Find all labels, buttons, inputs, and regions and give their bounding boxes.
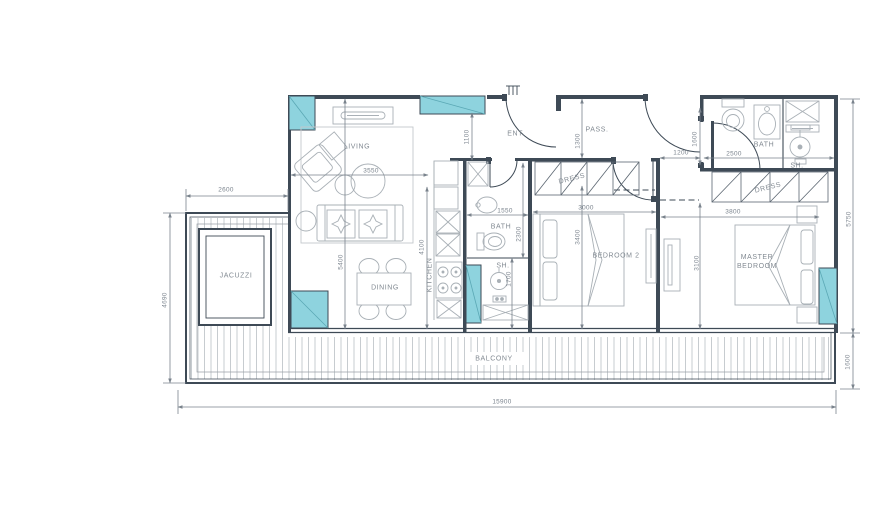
- dim-1600-door: 1600: [692, 131, 699, 147]
- dim-2500: 2500: [726, 151, 742, 158]
- column: [819, 268, 837, 324]
- room-label-jacuzzi: JACUZZI: [220, 273, 253, 280]
- dim-15900: 15900: [492, 399, 511, 406]
- dim-1200: 1200: [673, 150, 689, 157]
- room-label-passage: PASS.: [586, 127, 609, 134]
- dim-3100: 3100: [694, 255, 701, 271]
- toilet-icon: [477, 233, 505, 250]
- dim-3400: 3400: [575, 229, 582, 245]
- appliance-icon: [437, 300, 461, 318]
- dim-4100: 4100: [419, 239, 426, 255]
- dim-2300: 2300: [516, 226, 523, 242]
- room-label-kitchen: KITCHEN: [427, 258, 434, 293]
- dresser-icon: [646, 229, 656, 283]
- tv-dresser-icon: [664, 239, 680, 291]
- column: [289, 96, 315, 130]
- kitchen-sink-icon: [436, 211, 460, 256]
- dim-1600-balcony: 1600: [845, 354, 852, 370]
- cabinet-icon: [468, 162, 488, 186]
- toilet-icon: [722, 99, 744, 131]
- dim-5750: 5750: [846, 211, 853, 227]
- side-table-icon: [296, 211, 316, 231]
- kitchen-counter-icon: [434, 161, 458, 320]
- room-label-master-bedroom: MASTER BEDROOM: [728, 253, 786, 271]
- room-label-bath-master: BATH: [754, 142, 774, 149]
- sofa-icon: [317, 205, 403, 241]
- sink-icon: [476, 197, 497, 213]
- room-label-dining: DINING: [371, 285, 399, 292]
- entry-threshold-icon: [506, 86, 520, 95]
- dim-3800: 3800: [725, 209, 741, 216]
- dim-3550: 3550: [363, 168, 379, 175]
- room-label-living: LIVING: [344, 144, 370, 151]
- bedroom2-door-arc: [613, 160, 653, 200]
- stove-icon: [436, 262, 462, 298]
- armchair-icon: [293, 143, 344, 194]
- dim-1700: 1700: [506, 271, 513, 287]
- room-label-bath-middle: BATH: [491, 224, 511, 231]
- entry-door-arc: [506, 97, 556, 147]
- dim-1100: 1100: [464, 129, 471, 144]
- dim-2600: 2600: [218, 187, 234, 194]
- column: [420, 96, 485, 114]
- room-label-shower-middle: SH.: [496, 263, 509, 270]
- dim-4690: 4690: [162, 292, 169, 308]
- wardrobe-bedroom2-icon: [535, 162, 639, 195]
- dim-3000: 3000: [578, 205, 594, 212]
- dim-1300: 1300: [575, 133, 582, 149]
- bath-door-arc: [490, 160, 517, 187]
- floor-plan: JACUZZI LIVING DINING KITCHEN BATH SH. E…: [0, 0, 880, 510]
- dim-5400: 5400: [338, 254, 345, 270]
- dim-1550: 1550: [497, 208, 513, 215]
- column: [291, 291, 328, 328]
- room-label-shower-master: SH.: [790, 163, 803, 170]
- room-label-bedroom2: BEDROOM 2: [592, 253, 639, 260]
- tv-console-icon: [333, 107, 393, 124]
- room-label-entrance: ENT.: [507, 131, 524, 138]
- room-label-balcony: BALCONY: [471, 356, 516, 363]
- ledge-icon: [483, 305, 528, 320]
- column: [466, 265, 481, 323]
- sink-icon: [754, 105, 780, 139]
